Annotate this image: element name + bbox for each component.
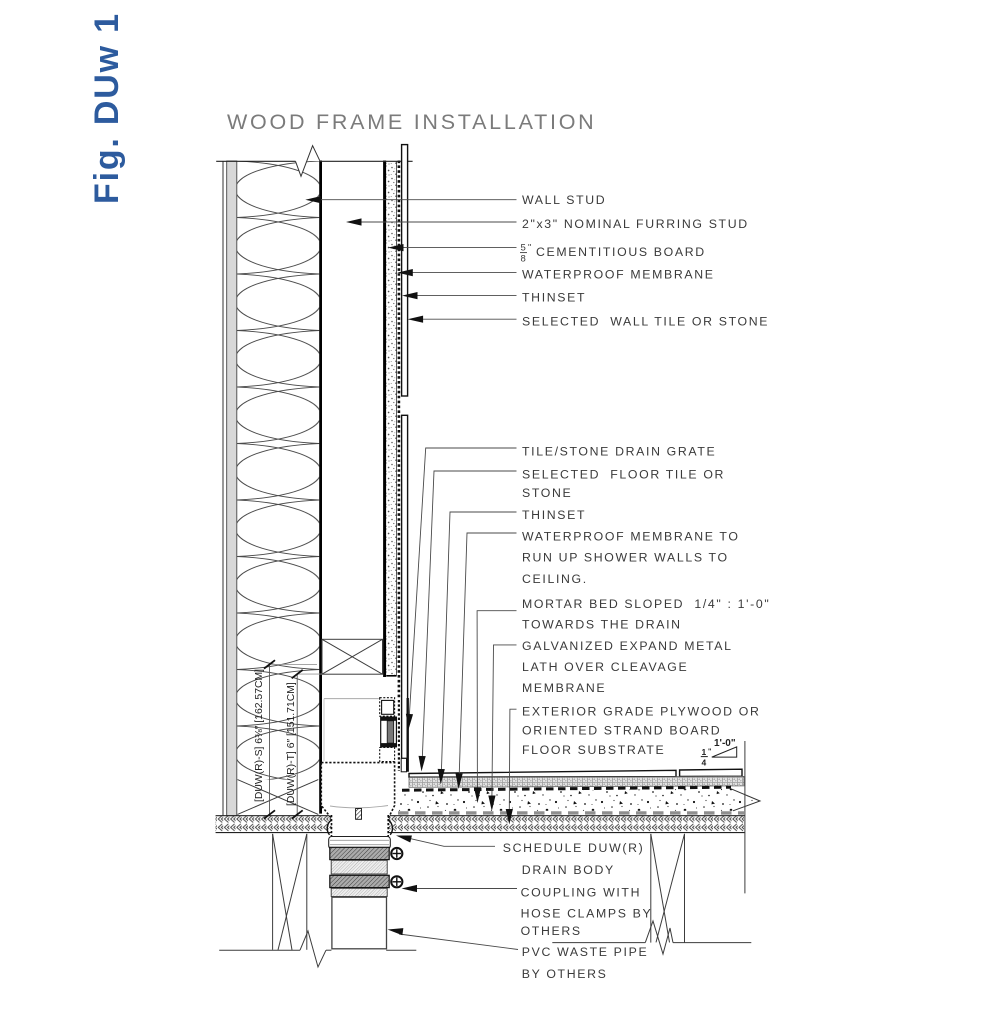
svg-text:SCHEDULE DUW(R): SCHEDULE DUW(R): [503, 841, 645, 855]
svg-text:5: 5: [521, 243, 526, 254]
svg-text:2"x3" NOMINAL FURRING STUD: 2"x3" NOMINAL FURRING STUD: [522, 217, 749, 231]
svg-text:Fig. DUw 1: Fig. DUw 1: [88, 12, 126, 204]
svg-text:EXTERIOR GRADE PLYWOOD OR: EXTERIOR GRADE PLYWOOD OR: [522, 705, 760, 719]
svg-text:1'-0": 1'-0": [714, 738, 736, 749]
svg-text:": ": [708, 749, 711, 756]
svg-text:8: 8: [521, 254, 526, 265]
svg-text:": ": [528, 243, 531, 253]
svg-text:DRAIN BODY: DRAIN BODY: [522, 863, 615, 877]
svg-text:PVC WASTE PIPE: PVC WASTE PIPE: [522, 945, 649, 959]
svg-text:1: 1: [702, 747, 707, 757]
svg-text:4: 4: [702, 758, 707, 768]
svg-text:WALL STUD: WALL STUD: [522, 193, 606, 207]
svg-text:THINSET: THINSET: [522, 508, 586, 522]
svg-text:FLOOR SUBSTRATE: FLOOR SUBSTRATE: [522, 743, 665, 757]
svg-text:HOSE CLAMPS BY: HOSE CLAMPS BY: [521, 906, 653, 920]
svg-text:ORIENTED STRAND BOARD: ORIENTED STRAND BOARD: [522, 724, 721, 738]
svg-text:CEMENTITIOUS BOARD: CEMENTITIOUS BOARD: [536, 245, 706, 259]
svg-text:CEILING.: CEILING.: [522, 572, 588, 586]
svg-text:BY OTHERS: BY OTHERS: [522, 967, 608, 981]
svg-text:SELECTED FLOOR TILE OR: SELECTED FLOOR TILE OR: [522, 468, 725, 482]
svg-text:TILE/STONE DRAIN GRATE: TILE/STONE DRAIN GRATE: [522, 445, 716, 459]
svg-text:SELECTED WALL TILE OR STONE: SELECTED WALL TILE OR STONE: [522, 315, 769, 329]
svg-text:THINSET: THINSET: [522, 291, 586, 305]
svg-text:MEMBRANE: MEMBRANE: [522, 681, 606, 695]
svg-text:WATERPROOF MEMBRANE: WATERPROOF MEMBRANE: [522, 268, 715, 282]
svg-text:WOOD FRAME INSTALLATION: WOOD FRAME INSTALLATION: [227, 110, 596, 134]
svg-text:TOWARDS THE DRAIN: TOWARDS THE DRAIN: [522, 618, 682, 632]
svg-text:WATERPROOF MEMBRANE TO: WATERPROOF MEMBRANE TO: [522, 530, 740, 544]
svg-text:COUPLING WITH: COUPLING WITH: [521, 885, 642, 899]
svg-text:OTHERS: OTHERS: [521, 924, 582, 938]
svg-text:STONE: STONE: [522, 486, 572, 500]
svg-text:[DUW(R)-S] 6⅜″ [162.57CM]: [DUW(R)-S] 6⅜″ [162.57CM]: [254, 669, 265, 802]
svg-text:RUN UP SHOWER WALLS TO: RUN UP SHOWER WALLS TO: [522, 551, 729, 565]
svg-text:MORTAR BED SLOPED 1/4" : 1'-0: MORTAR BED SLOPED 1/4" : 1'-0": [522, 597, 770, 611]
svg-text:[DUW(R)-T] 6″ [151.71CM]: [DUW(R)-T] 6″ [151.71CM]: [286, 682, 297, 806]
svg-text:LATH OVER CLEAVAGE: LATH OVER CLEAVAGE: [522, 660, 688, 674]
svg-text:GALVANIZED EXPAND METAL: GALVANIZED EXPAND METAL: [522, 639, 733, 653]
